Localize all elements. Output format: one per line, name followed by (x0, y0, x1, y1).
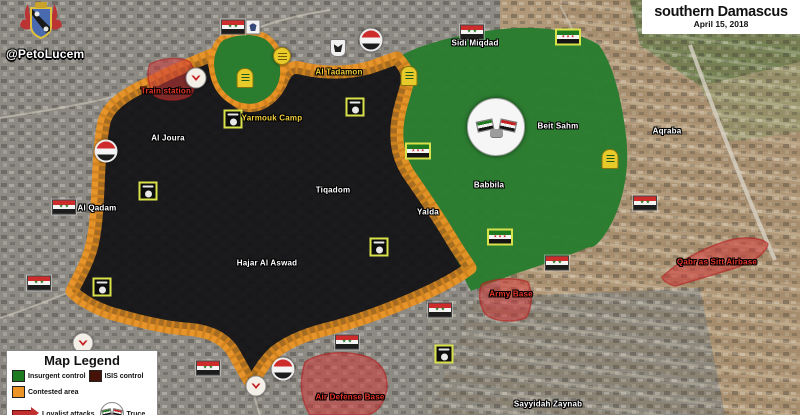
opposition-flag-icon (100, 408, 111, 415)
title-box: southern Damascus April 15, 2018 (642, 0, 800, 34)
handshake-icon (490, 129, 503, 137)
legend-truce-label: Truce (127, 411, 146, 415)
place-label-al-qadam: Al Qadam (78, 204, 117, 213)
place-label-sayyidah-zaynab: Sayyidah Zaynab (514, 400, 582, 409)
syrian-flag-marker (428, 303, 452, 318)
satellite-map: @PetoLucem southern Damascus April 15, 2… (0, 0, 800, 415)
isis-flag-marker (139, 182, 158, 201)
place-label-beit-sahm: Beit Sahm (538, 122, 579, 131)
petolucem-crest-icon (18, 2, 64, 42)
syrian-flag-marker (196, 361, 220, 376)
place-label-al-tadamon: Al Tadamon (315, 68, 362, 77)
place-label-sidi-miqdad: Sidi Miqdad (451, 39, 498, 48)
eagle-badge-marker (330, 39, 346, 57)
syrian-flag-marker (27, 276, 51, 291)
place-label-army-base: Army Base (489, 290, 533, 299)
yellow-arch-marker (237, 68, 254, 88)
syrian-flag-marker (221, 20, 245, 35)
place-label-hajar-al-aswad: Hajar Al Aswad (237, 259, 297, 268)
opposition-flag-marker (405, 143, 431, 160)
place-label-yarmouk-camp: Yarmouk Camp (242, 114, 303, 123)
syrian-roundel-marker (272, 358, 295, 381)
place-label-aqraba: Aqraba (653, 127, 682, 136)
watermark-handle: @PetoLucem (6, 47, 76, 61)
legend-loyalist-label: Loyalist attacks (42, 411, 95, 415)
place-label-train-station: Train station (141, 87, 191, 96)
legend-title: Map Legend (12, 353, 152, 368)
place-label-al-joura: Al Joura (151, 134, 185, 143)
legend-contested-label: Contested area (28, 389, 79, 396)
map-legend: Map Legend Insurgent control ISIS contro… (6, 350, 158, 415)
syrian-flag-marker (545, 256, 569, 271)
isis-flag-marker (224, 110, 243, 129)
opposition-flag-marker (555, 29, 581, 46)
place-label-tiqadom: Tiqadom (316, 186, 351, 195)
place-label-babbila: Babbila (474, 181, 504, 190)
syrian-flag-marker (633, 196, 657, 211)
place-label-air-defense-base: Air Defense Base (315, 393, 384, 402)
place-label-qabr-as-sitt-airbase: Qabr as Sitt Airbase (677, 258, 757, 267)
contested-color-swatch (12, 386, 25, 398)
syrian-roundel-marker (360, 29, 383, 52)
map-date: April 15, 2018 (694, 20, 749, 29)
legend-row-attacks-truce: Loyalist attacks Truce (12, 402, 152, 415)
white-badge-marker (246, 20, 261, 35)
syrian-roundel-marker (95, 140, 118, 163)
truce-circle-marker (467, 98, 525, 156)
air-defense-base-zone (301, 353, 387, 415)
yellow-roundel-marker (273, 47, 291, 65)
opposition-flag-marker (487, 229, 513, 246)
legend-row-contested: Contested area (12, 386, 152, 398)
legend-insurgent-label: Insurgent control (28, 373, 86, 380)
place-label-yalda: Yalda (417, 208, 439, 217)
yellow-arch-marker (602, 149, 619, 169)
syrian-flag-marker (460, 25, 484, 40)
red-roundel-marker (186, 68, 207, 89)
red-roundel-marker (246, 376, 267, 397)
loyalist-attack-arrow-icon (12, 410, 32, 415)
insurgent-color-swatch (12, 370, 25, 382)
watermark: @PetoLucem (6, 2, 76, 61)
truce-icon (100, 402, 124, 415)
isis-flag-marker (93, 278, 112, 297)
isis-flag-marker (346, 98, 365, 117)
syrian-flag-marker (52, 200, 76, 215)
syrian-flag-marker (335, 335, 359, 350)
legend-row-control: Insurgent control ISIS control (12, 370, 152, 382)
isis-flag-marker (370, 238, 389, 257)
isis-color-swatch (89, 370, 102, 382)
legend-isis-label: ISIS control (105, 373, 144, 380)
syrian-flag-icon (111, 408, 122, 415)
isis-flag-marker (435, 345, 454, 364)
yellow-arch-marker (401, 66, 418, 86)
army-base-zone (480, 279, 532, 321)
map-title: southern Damascus (654, 5, 788, 20)
